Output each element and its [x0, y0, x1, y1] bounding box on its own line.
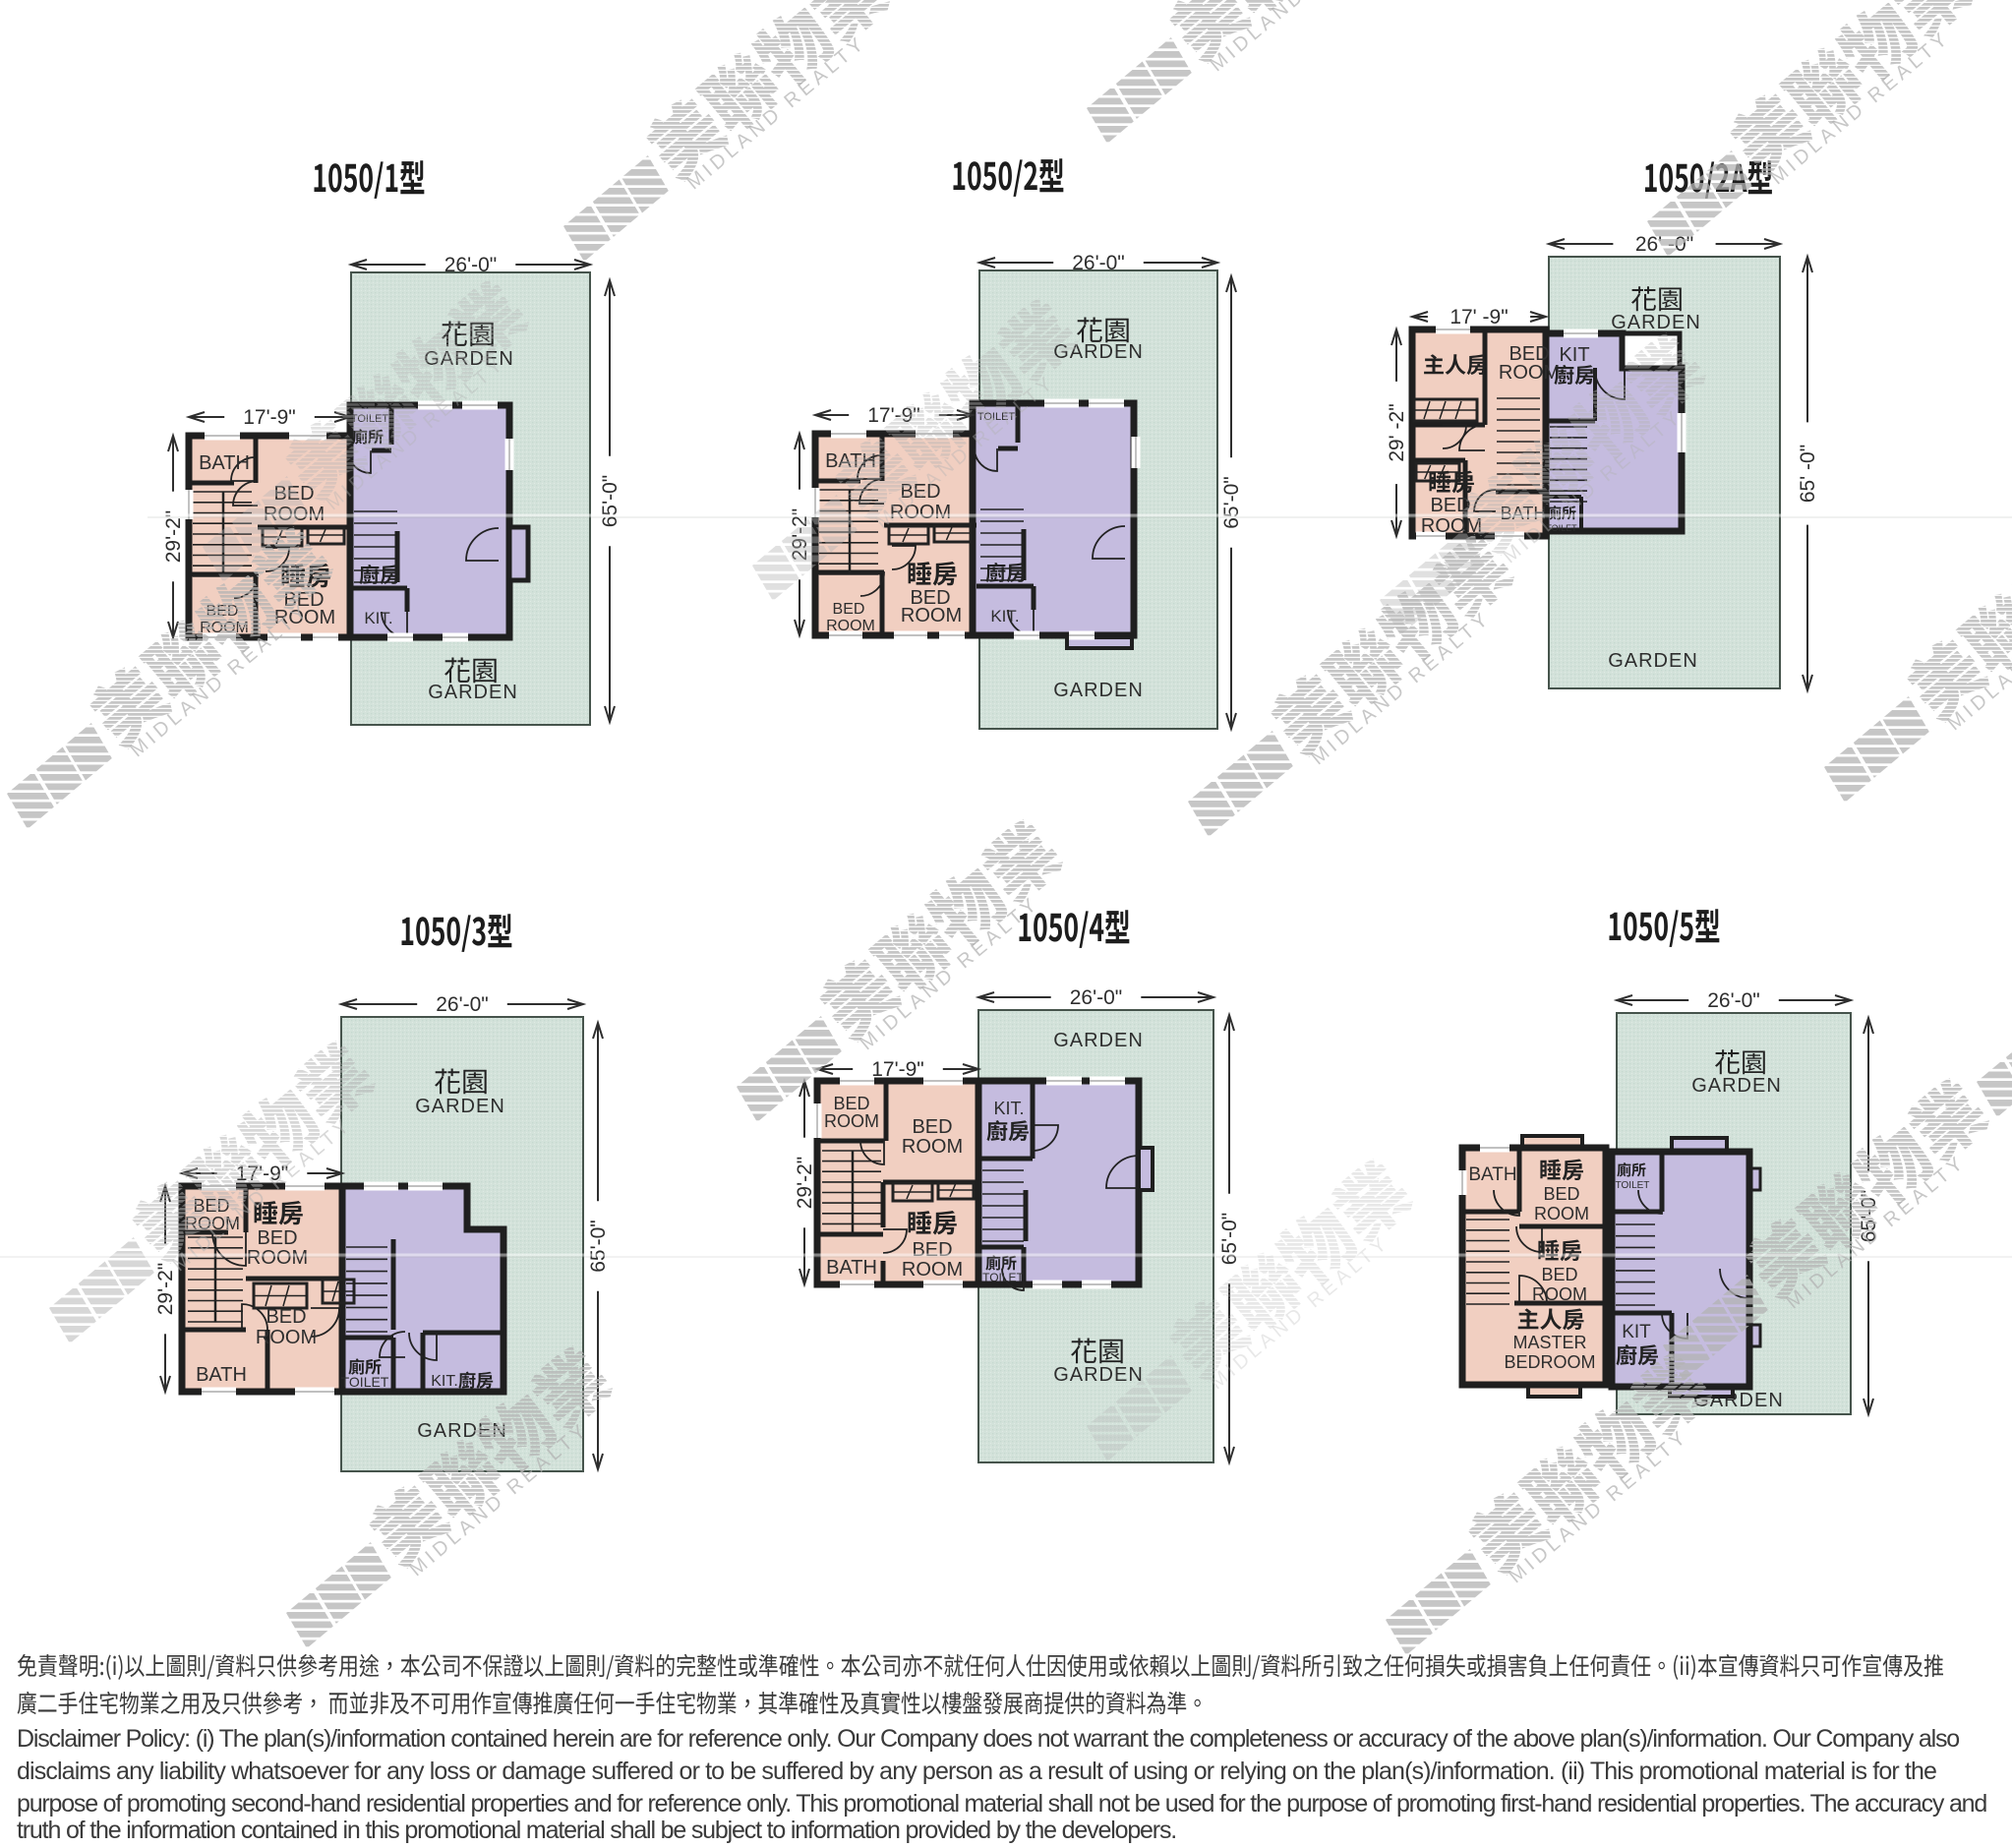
- svg-text:65'-0": 65'-0": [599, 475, 621, 528]
- svg-text:26'-0": 26'-0": [1707, 989, 1760, 1012]
- svg-text:BATH: BATH: [199, 452, 250, 474]
- svg-text:BATH: BATH: [826, 1257, 877, 1279]
- svg-text:truth of the information conta: truth of the information contained in th…: [17, 1817, 1176, 1843]
- svg-text:29'-2": 29'-2": [162, 510, 185, 564]
- svg-text:ROOM: ROOM: [1534, 1204, 1589, 1223]
- svg-text:65'-0": 65'-0": [587, 1220, 610, 1273]
- svg-text:ROOM: ROOM: [902, 1259, 963, 1281]
- svg-text:26'-0": 26'-0": [1072, 252, 1125, 274]
- svg-text:BEDROOM: BEDROOM: [1504, 1352, 1595, 1372]
- svg-text:ROOM: ROOM: [1499, 362, 1560, 384]
- svg-text:GARDEN: GARDEN: [1053, 1030, 1144, 1051]
- svg-text:65' -0": 65' -0": [1797, 445, 1819, 503]
- svg-text:KIT: KIT: [1622, 1322, 1651, 1342]
- svg-text:BED: BED: [1543, 1184, 1579, 1204]
- svg-text:29'-2": 29'-2": [794, 1157, 816, 1210]
- svg-text:TOILET: TOILET: [341, 1374, 389, 1390]
- svg-text:KIT.: KIT.: [993, 1099, 1024, 1118]
- svg-text:65'-0": 65'-0": [1220, 476, 1243, 529]
- svg-text:GARDEN: GARDEN: [415, 1096, 505, 1117]
- svg-text:17'-9": 17'-9": [871, 1058, 924, 1081]
- svg-text:BATH: BATH: [196, 1364, 247, 1386]
- svg-text:ROOM: ROOM: [1421, 515, 1482, 537]
- svg-text:BED: BED: [266, 1306, 306, 1328]
- svg-text:TOILET: TOILET: [1616, 1180, 1650, 1191]
- svg-text:MASTER: MASTER: [1512, 1333, 1586, 1352]
- svg-text:ROOM: ROOM: [256, 1327, 317, 1348]
- svg-text:GARDEN: GARDEN: [1691, 1075, 1782, 1097]
- svg-text:KIT: KIT: [1559, 344, 1589, 366]
- svg-text:BED: BED: [833, 601, 865, 618]
- svg-text:ROOM: ROOM: [247, 1247, 308, 1269]
- svg-text:ROOM: ROOM: [1532, 1284, 1587, 1304]
- svg-text:KIT.: KIT.: [431, 1373, 458, 1390]
- svg-text:GARDEN: GARDEN: [428, 682, 518, 703]
- svg-text:purpose of promoting second-ha: purpose of promoting second-hand residen…: [17, 1790, 1986, 1818]
- svg-text:GARDEN: GARDEN: [1608, 650, 1698, 672]
- svg-text:BATH: BATH: [1468, 1164, 1516, 1185]
- svg-text:KIT.: KIT.: [364, 609, 392, 627]
- svg-text:Disclaimer Policy: (i) The pla: Disclaimer Policy: (i) The plan(s)/infor…: [17, 1725, 1959, 1753]
- svg-text:BED: BED: [1541, 1265, 1577, 1284]
- svg-text:26'-0": 26'-0": [444, 254, 498, 276]
- svg-text:29'-2": 29'-2": [154, 1263, 177, 1316]
- svg-text:disclaims any liability whatso: disclaims any liability whatsoever for a…: [17, 1758, 1936, 1785]
- svg-text:26'-0": 26'-0": [436, 993, 489, 1016]
- svg-text:ROOM: ROOM: [826, 618, 875, 634]
- svg-text:GARDEN: GARDEN: [1053, 1364, 1144, 1386]
- svg-text:BED: BED: [912, 1239, 952, 1261]
- svg-text:KIT.: KIT.: [990, 607, 1019, 626]
- svg-text:17'-9": 17'-9": [243, 406, 296, 429]
- svg-text:BED: BED: [257, 1227, 297, 1249]
- svg-text:BED: BED: [833, 1094, 869, 1113]
- svg-text:ROOM: ROOM: [901, 605, 962, 626]
- svg-text:ROOM: ROOM: [824, 1111, 879, 1131]
- svg-text:ROOM: ROOM: [902, 1136, 963, 1158]
- svg-text:26'-0": 26'-0": [1070, 986, 1123, 1009]
- svg-text:29' -2": 29' -2": [1386, 403, 1408, 461]
- svg-text:GARDEN: GARDEN: [1053, 680, 1144, 701]
- svg-text:TOILET: TOILET: [982, 1271, 1024, 1284]
- svg-text:BED: BED: [912, 1116, 952, 1138]
